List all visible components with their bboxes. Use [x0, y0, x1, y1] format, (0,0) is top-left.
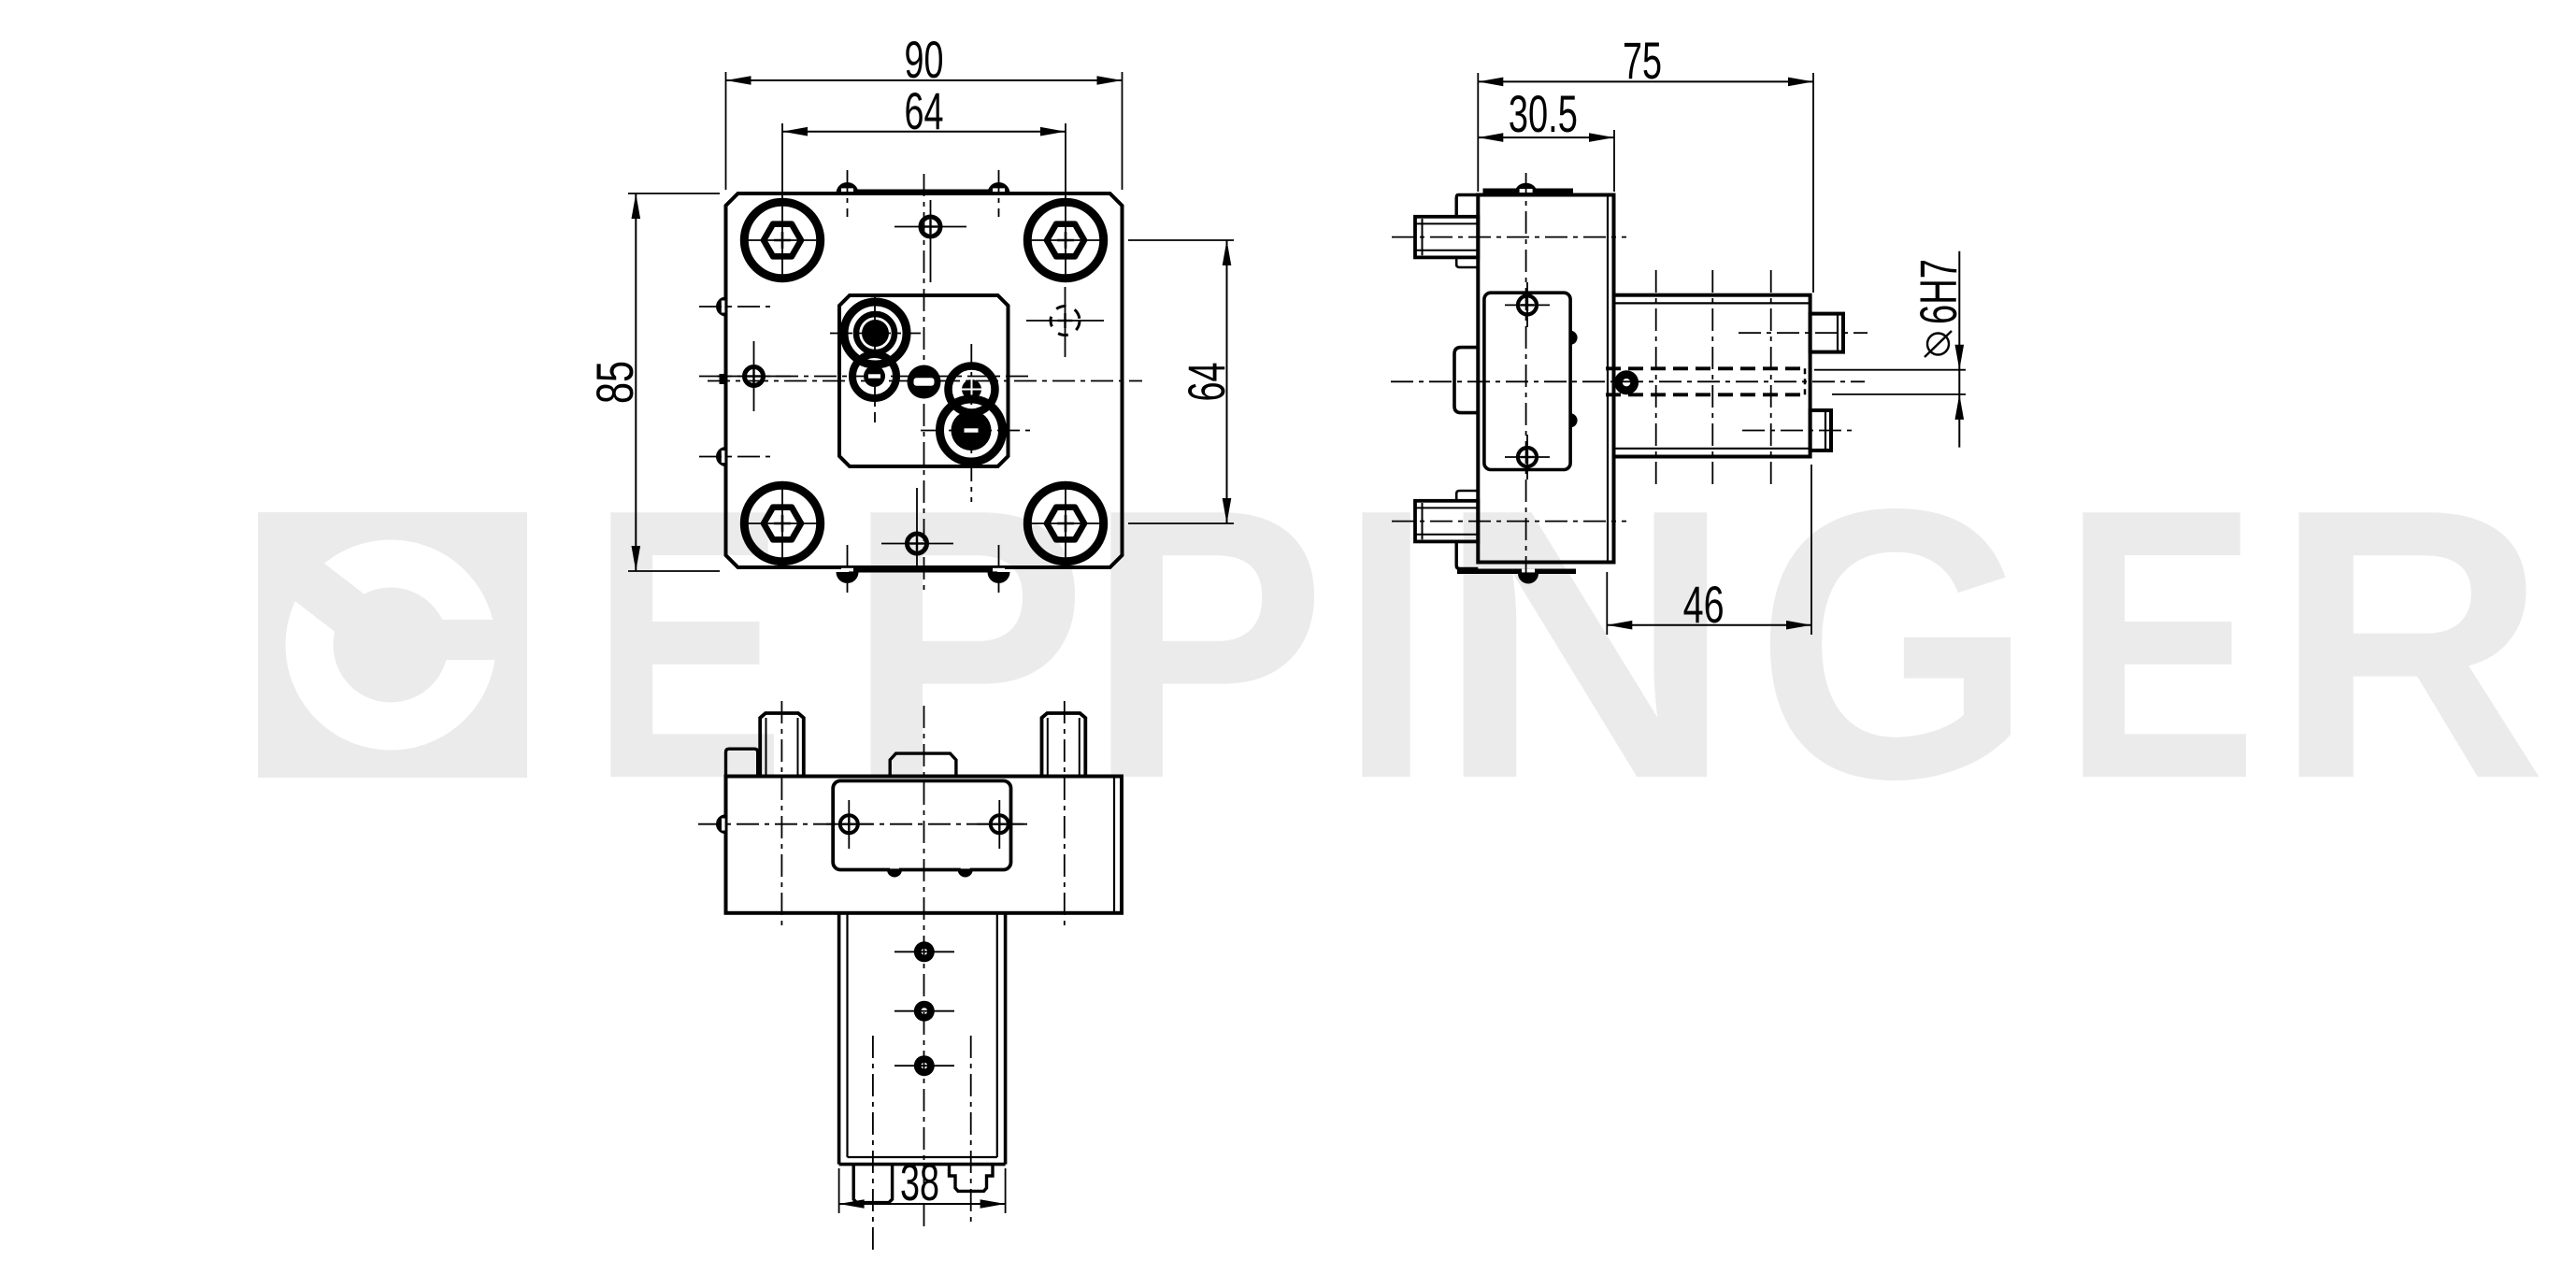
svg-text:46: 46 — [1683, 575, 1724, 634]
svg-text:P: P — [847, 429, 1088, 859]
svg-text:64: 64 — [905, 81, 944, 140]
svg-text:64: 64 — [1177, 363, 1236, 402]
svg-text:38: 38 — [900, 1152, 939, 1211]
svg-text:N: N — [1436, 429, 1735, 859]
svg-text:75: 75 — [1623, 31, 1662, 90]
svg-text:I: I — [1340, 430, 1433, 858]
svg-text:6H7: 6H7 — [1909, 259, 1968, 324]
svg-text:R: R — [2273, 430, 2546, 858]
svg-text:90: 90 — [905, 30, 944, 89]
svg-text:G: G — [1755, 430, 2033, 859]
svg-text:85: 85 — [585, 361, 644, 404]
svg-text:30.5: 30.5 — [1509, 84, 1578, 143]
svg-text:E: E — [2064, 430, 2258, 859]
